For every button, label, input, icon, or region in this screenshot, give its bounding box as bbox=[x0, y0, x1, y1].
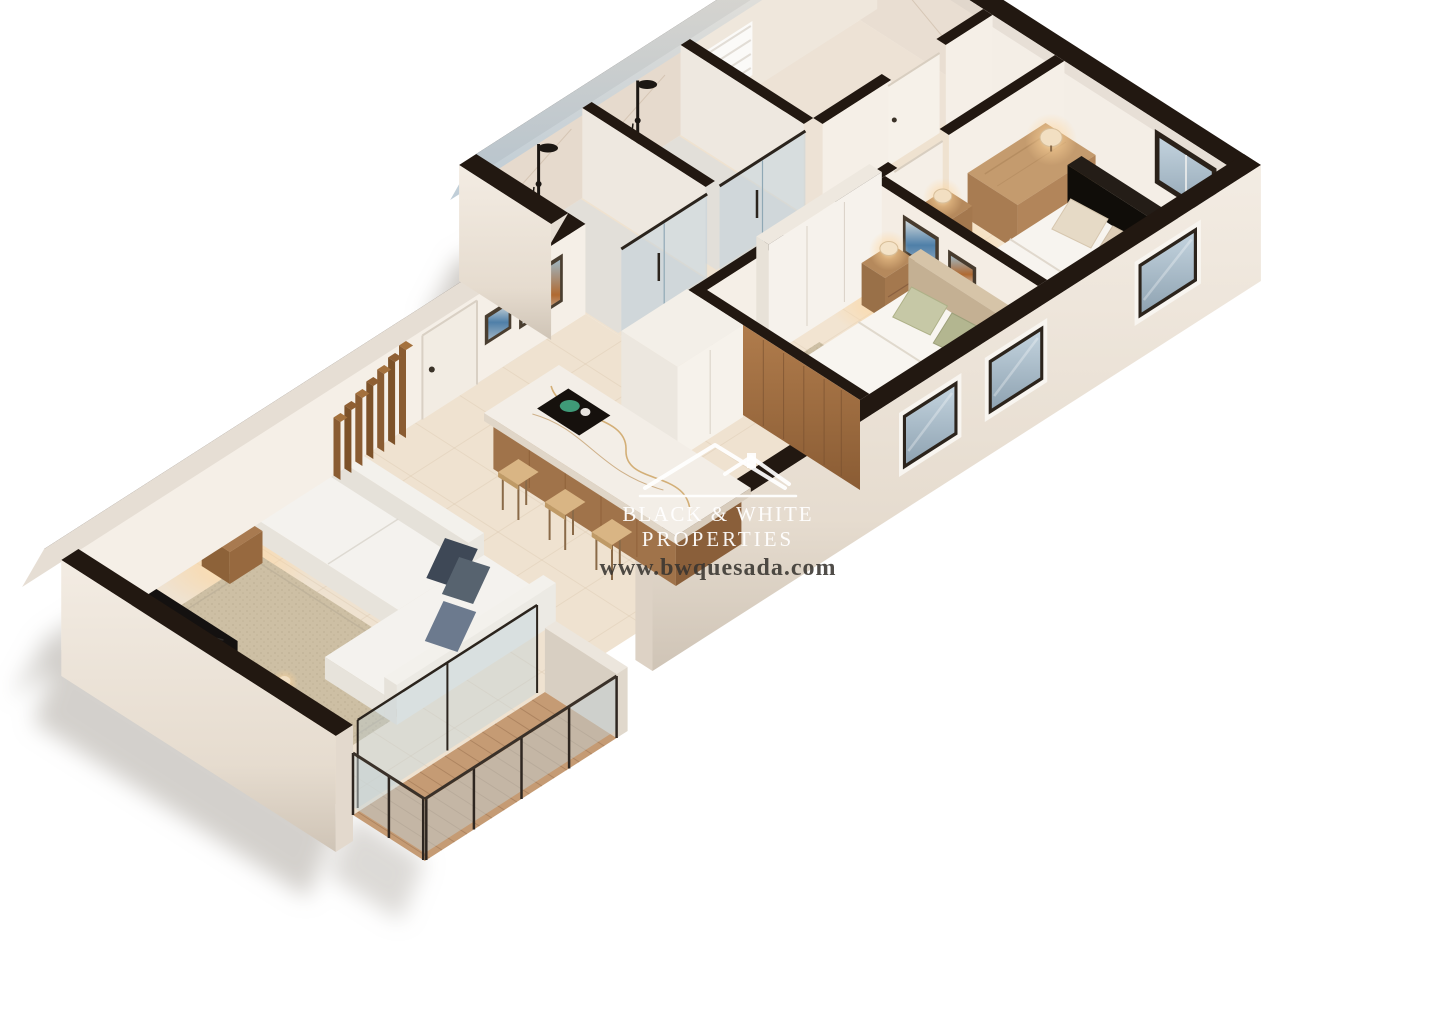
apartment-isometric-scene bbox=[0, 0, 1440, 1024]
nightstand-lamp bbox=[869, 231, 909, 271]
desk-lamp bbox=[1025, 114, 1077, 166]
floorplan-3d-render: BLACK & WHITE PROPERTIES www.bwquesada.c… bbox=[0, 0, 1440, 1024]
